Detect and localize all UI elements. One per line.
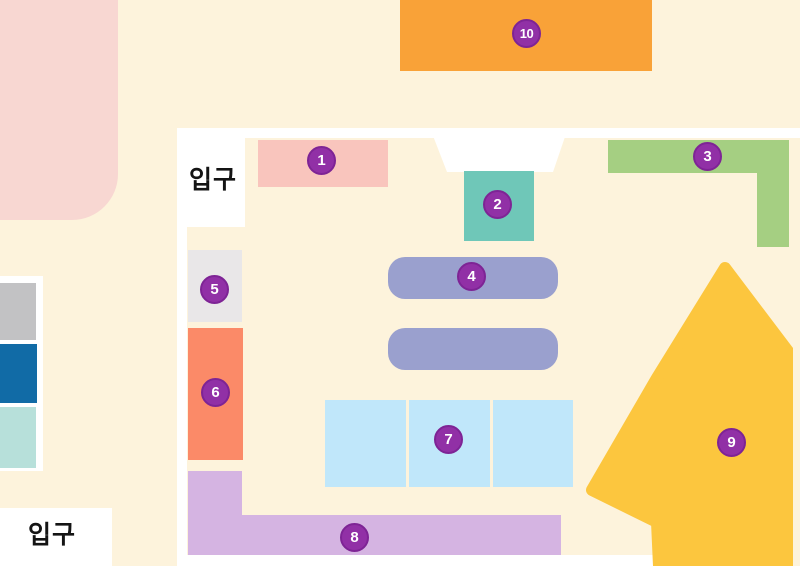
zone-7-marker[interactable]: 7 xyxy=(434,425,463,454)
outside-pink-area xyxy=(0,0,118,220)
entrance-label-bottom: 입구 xyxy=(28,523,76,548)
zone-9-marker[interactable]: 9 xyxy=(717,428,746,457)
zone-9-area-star-shape xyxy=(585,260,793,566)
left-shelf-teal xyxy=(0,407,36,468)
entrance-label-top: 입구 xyxy=(189,168,237,193)
zone-7-area-1 xyxy=(325,400,406,487)
zone-4-area-second xyxy=(388,328,558,370)
left-shelf-gray xyxy=(0,283,36,340)
zone-3-marker[interactable]: 3 xyxy=(693,142,722,171)
zone-7-area-3 xyxy=(493,400,573,487)
store-floor-map: 입구 입구 1 2 3 4 5 6 7 8 9 10 xyxy=(0,0,800,566)
zone-8-marker[interactable]: 8 xyxy=(340,523,369,552)
zone-6-marker[interactable]: 6 xyxy=(201,378,230,407)
zone-5-marker[interactable]: 5 xyxy=(200,275,229,304)
door-notch xyxy=(425,128,570,173)
zone-3-area-vertical xyxy=(757,140,789,247)
zone-4-marker[interactable]: 4 xyxy=(457,262,486,291)
left-shelf-blue xyxy=(0,344,37,403)
zone-2-marker[interactable]: 2 xyxy=(483,190,512,219)
zone-8-area xyxy=(188,515,561,555)
zone-1-marker[interactable]: 1 xyxy=(307,146,336,175)
zone-10-marker[interactable]: 10 xyxy=(512,19,541,48)
